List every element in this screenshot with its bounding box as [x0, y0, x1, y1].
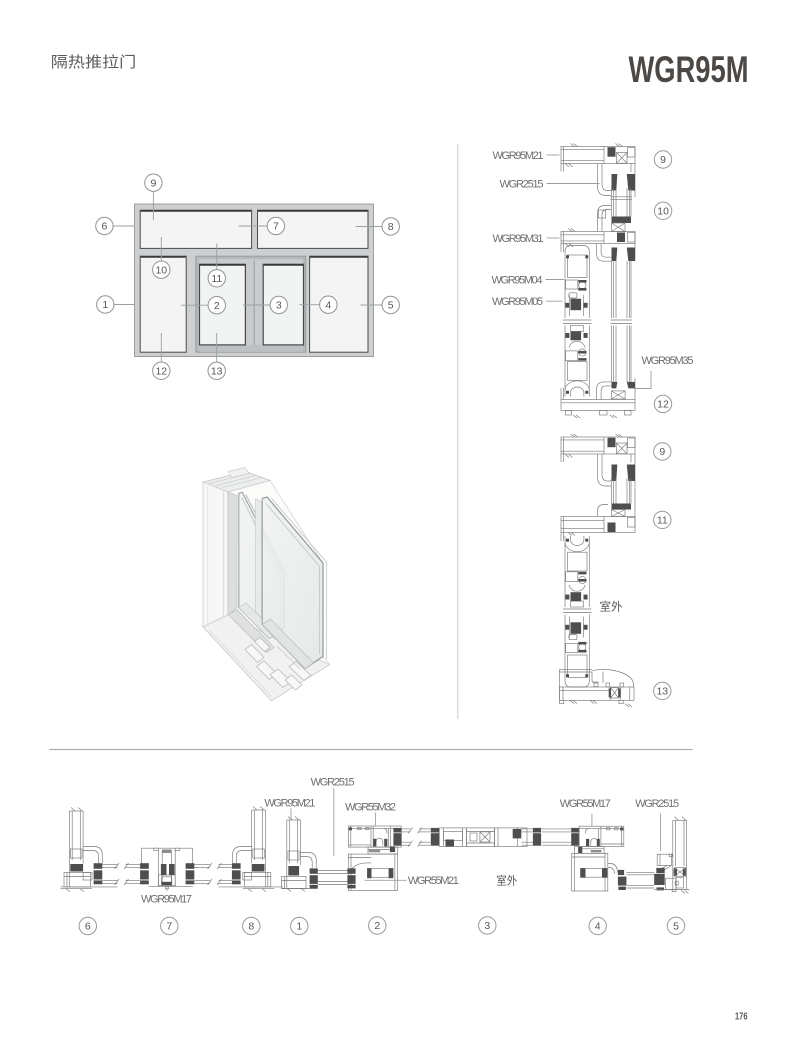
svg-text:8: 8 [248, 921, 254, 933]
svg-text:11: 11 [657, 515, 668, 527]
svg-text:176: 176 [735, 1012, 748, 1023]
svg-text:12: 12 [657, 399, 669, 411]
svg-text:9: 9 [150, 177, 156, 189]
svg-text:室外: 室外 [600, 600, 623, 614]
svg-text:10: 10 [155, 264, 167, 276]
svg-text:WGR55M32: WGR55M32 [345, 802, 396, 814]
svg-text:7: 7 [166, 921, 172, 933]
svg-text:1: 1 [296, 921, 302, 933]
svg-text:9: 9 [660, 154, 666, 166]
svg-text:1: 1 [102, 299, 108, 311]
svg-text:3: 3 [484, 920, 490, 932]
svg-text:12: 12 [155, 366, 167, 378]
svg-text:13: 13 [656, 686, 668, 698]
svg-text:WGR95M31: WGR95M31 [493, 233, 544, 245]
svg-text:10: 10 [657, 206, 669, 218]
svg-text:WGR95M35: WGR95M35 [642, 355, 694, 367]
svg-text:WGR95M04: WGR95M04 [492, 274, 543, 286]
svg-text:4: 4 [595, 921, 601, 933]
svg-text:WGR2515: WGR2515 [311, 777, 355, 789]
svg-text:6: 6 [85, 921, 91, 933]
svg-text:WGR55M21: WGR55M21 [408, 875, 459, 887]
svg-text:2: 2 [214, 300, 220, 312]
svg-text:8: 8 [388, 221, 394, 233]
svg-text:WGR95M21: WGR95M21 [493, 150, 544, 162]
svg-text:9: 9 [659, 446, 665, 458]
svg-text:WGR95M21: WGR95M21 [264, 798, 315, 810]
svg-text:6: 6 [101, 221, 107, 233]
svg-text:2: 2 [374, 920, 380, 932]
svg-text:WGR2515: WGR2515 [635, 798, 679, 810]
svg-text:5: 5 [388, 300, 394, 312]
svg-text:3: 3 [276, 300, 282, 312]
svg-text:4: 4 [325, 299, 331, 311]
svg-text:WGR95M17: WGR95M17 [141, 894, 192, 906]
svg-text:5: 5 [673, 921, 679, 933]
svg-text:WGR55M17: WGR55M17 [560, 798, 611, 810]
svg-text:室外: 室外 [496, 874, 517, 888]
svg-text:7: 7 [273, 221, 279, 233]
svg-text:WGR2515: WGR2515 [500, 178, 544, 190]
svg-text:隔热推拉门: 隔热推拉门 [51, 54, 137, 71]
svg-text:11: 11 [211, 273, 222, 285]
svg-text:13: 13 [211, 366, 223, 378]
svg-text:WGR95M: WGR95M [629, 49, 749, 90]
svg-text:WGR95M05: WGR95M05 [492, 296, 543, 308]
